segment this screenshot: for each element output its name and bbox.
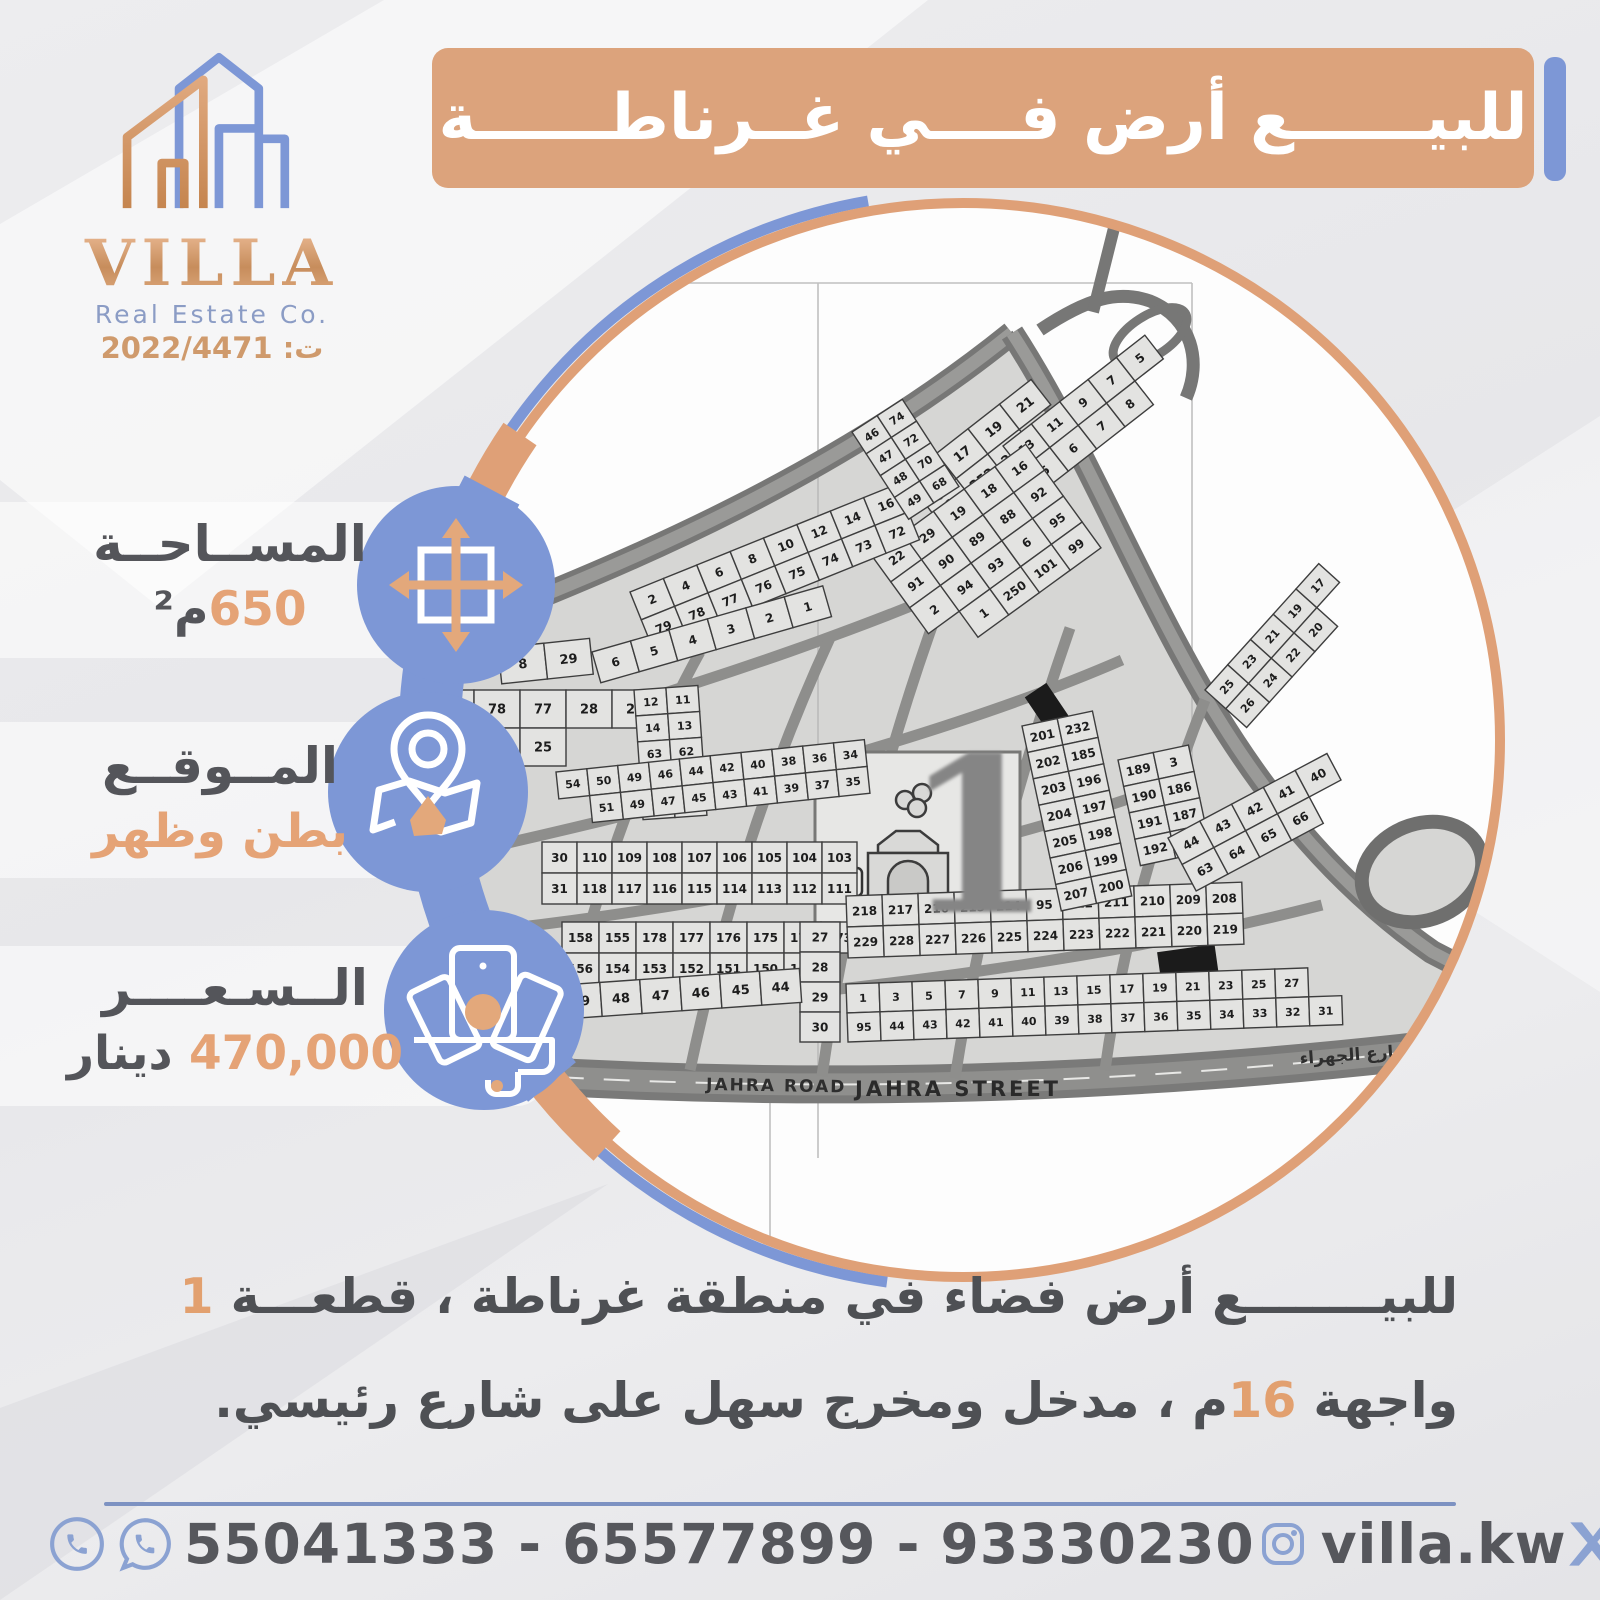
svg-text:116: 116 bbox=[652, 882, 677, 896]
svg-text:46: 46 bbox=[657, 767, 674, 782]
instagram-icon bbox=[1255, 1516, 1311, 1572]
svg-text:197: 197 bbox=[1081, 798, 1108, 817]
svg-text:174: 174 bbox=[790, 931, 815, 945]
svg-text:175: 175 bbox=[753, 931, 778, 945]
svg-text:30: 30 bbox=[551, 851, 568, 865]
svg-text:18: 18 bbox=[978, 480, 1000, 501]
svg-text:77: 77 bbox=[720, 591, 741, 610]
svg-text:232: 232 bbox=[1064, 719, 1091, 738]
svg-text:216: 216 bbox=[924, 901, 950, 916]
svg-text:88: 88 bbox=[997, 506, 1019, 527]
svg-text:38: 38 bbox=[780, 754, 797, 769]
svg-text:45: 45 bbox=[731, 983, 750, 999]
svg-text:41: 41 bbox=[1276, 782, 1297, 802]
svg-text:114: 114 bbox=[722, 882, 747, 896]
svg-text:44: 44 bbox=[771, 980, 790, 996]
logo-subtitle: Real Estate Co. bbox=[52, 300, 372, 329]
svg-text:33: 33 bbox=[1252, 1007, 1268, 1021]
svg-text:46: 46 bbox=[691, 985, 710, 1001]
location-value: بطن وظهر bbox=[40, 806, 400, 858]
page-title: للبيــــــع أرض فــــي غــرناطــــــة bbox=[439, 81, 1528, 155]
svg-text:65: 65 bbox=[1258, 826, 1279, 846]
svg-text:111: 111 bbox=[827, 882, 852, 896]
svg-text:40: 40 bbox=[1021, 1015, 1037, 1029]
svg-text:177: 177 bbox=[679, 931, 704, 945]
svg-text:19: 19 bbox=[1152, 981, 1168, 995]
svg-text:211: 211 bbox=[1104, 895, 1130, 910]
svg-text:43: 43 bbox=[922, 1018, 938, 1032]
svg-text:201: 201 bbox=[1029, 726, 1056, 745]
svg-text:106: 106 bbox=[722, 851, 747, 865]
svg-text:74: 74 bbox=[820, 550, 841, 569]
svg-text:12: 12 bbox=[809, 522, 830, 541]
svg-text:72: 72 bbox=[887, 523, 908, 542]
location-label: المــوقــع bbox=[40, 738, 400, 796]
svg-text:250: 250 bbox=[1001, 578, 1030, 604]
svg-text:13: 13 bbox=[677, 719, 693, 733]
svg-text:8: 8 bbox=[1123, 396, 1138, 412]
svg-text:42: 42 bbox=[719, 761, 736, 776]
svg-text:74: 74 bbox=[887, 409, 907, 428]
svg-text:49: 49 bbox=[904, 491, 924, 510]
svg-text:93: 93 bbox=[985, 555, 1007, 576]
phone-numbers[interactable]: 55041333 - 65577899 - 93330230 bbox=[184, 1512, 1255, 1576]
jahra-highway bbox=[420, 1040, 1510, 1084]
svg-text:75: 75 bbox=[787, 564, 808, 583]
roundabout bbox=[1347, 804, 1498, 939]
central-plaza bbox=[815, 752, 1020, 942]
svg-text:223: 223 bbox=[1069, 927, 1095, 942]
svg-text:37: 37 bbox=[814, 778, 831, 793]
svg-text:47: 47 bbox=[651, 988, 670, 1004]
svg-text:15: 15 bbox=[1086, 984, 1102, 998]
subdivision-map: P 15171921125225313119755678222919181691… bbox=[415, 212, 1515, 1260]
map-disc bbox=[430, 207, 1496, 1273]
svg-text:202: 202 bbox=[1034, 753, 1061, 772]
svg-text:191: 191 bbox=[1136, 813, 1163, 832]
svg-text:68: 68 bbox=[682, 797, 698, 811]
svg-text:25: 25 bbox=[1217, 677, 1237, 697]
orange-ring bbox=[426, 203, 1500, 1277]
svg-text:105: 105 bbox=[757, 851, 782, 865]
utility-plots bbox=[652, 683, 1221, 998]
svg-text:63: 63 bbox=[646, 747, 662, 761]
svg-text:155: 155 bbox=[605, 931, 630, 945]
svg-text:107: 107 bbox=[687, 851, 712, 865]
svg-text:47: 47 bbox=[876, 447, 896, 466]
svg-text:45: 45 bbox=[691, 791, 708, 806]
svg-text:214: 214 bbox=[996, 899, 1022, 914]
svg-text:35: 35 bbox=[1186, 1009, 1202, 1023]
svg-text:226: 226 bbox=[961, 931, 987, 946]
svg-text:12: 12 bbox=[643, 695, 659, 709]
svg-text:26: 26 bbox=[1238, 695, 1258, 715]
svg-text:6: 6 bbox=[1019, 535, 1034, 551]
svg-text:77: 77 bbox=[534, 703, 552, 718]
svg-text:203: 203 bbox=[1040, 779, 1067, 798]
svg-text:11: 11 bbox=[1020, 986, 1036, 1000]
svg-text:19: 19 bbox=[948, 503, 970, 524]
svg-text:95: 95 bbox=[1047, 510, 1069, 531]
svg-text:43: 43 bbox=[1212, 816, 1233, 836]
right-boundary-road bbox=[1012, 333, 1515, 995]
mosque-icon bbox=[868, 784, 948, 901]
area-value: 650م² bbox=[50, 584, 410, 636]
svg-text:14: 14 bbox=[645, 721, 662, 735]
ad-poster: { "logo": { "name": "VILLA", "subtitle":… bbox=[0, 0, 1600, 1600]
svg-text:16: 16 bbox=[876, 495, 897, 514]
svg-text:49: 49 bbox=[572, 994, 591, 1010]
svg-text:6: 6 bbox=[610, 654, 622, 670]
svg-text:89: 89 bbox=[966, 529, 988, 550]
svg-text:17: 17 bbox=[951, 443, 974, 466]
svg-text:49: 49 bbox=[629, 797, 646, 812]
svg-text:44: 44 bbox=[1180, 833, 1201, 853]
phone-icon bbox=[48, 1515, 106, 1573]
svg-text:220: 220 bbox=[1177, 923, 1203, 938]
price-label: الــسـعــــر bbox=[55, 960, 415, 1018]
svg-text:23: 23 bbox=[1218, 979, 1234, 993]
price-value: 470,000 دينار bbox=[55, 1028, 415, 1080]
footer-divider bbox=[104, 1502, 1456, 1506]
svg-text:7: 7 bbox=[1104, 372, 1119, 388]
svg-text:152: 152 bbox=[679, 962, 704, 976]
svg-text:1: 1 bbox=[943, 496, 959, 513]
social-group: villa_kw bbox=[1567, 1512, 1600, 1576]
interchange-road bbox=[1040, 296, 1193, 398]
svg-text:44: 44 bbox=[889, 1019, 905, 1033]
svg-text:13: 13 bbox=[1016, 436, 1038, 457]
svg-text:5: 5 bbox=[648, 643, 660, 659]
scan-frame-lines bbox=[520, 283, 1192, 1260]
x-twitter-icon bbox=[1567, 1519, 1600, 1569]
area-label: المســاحــة bbox=[50, 516, 410, 574]
svg-text:156: 156 bbox=[568, 962, 593, 976]
svg-text:6: 6 bbox=[713, 564, 726, 580]
svg-text:208: 208 bbox=[1212, 891, 1238, 906]
svg-text:17: 17 bbox=[1308, 576, 1328, 596]
svg-text:20: 20 bbox=[1306, 620, 1326, 640]
svg-text:229: 229 bbox=[853, 935, 879, 950]
svg-text:8: 8 bbox=[746, 551, 759, 567]
svg-text:27: 27 bbox=[812, 930, 829, 944]
svg-text:44: 44 bbox=[688, 764, 705, 779]
svg-text:5: 5 bbox=[925, 989, 933, 1002]
svg-text:73: 73 bbox=[854, 537, 875, 556]
description-line-2: واجهة 16م ، مدخل ومخرج سهل على شارع رئيس… bbox=[90, 1372, 1458, 1429]
instagram-handle[interactable]: villa.kw bbox=[1321, 1512, 1567, 1576]
svg-text:9: 9 bbox=[1076, 395, 1091, 411]
svg-text:19: 19 bbox=[1285, 601, 1305, 621]
svg-text:5: 5 bbox=[1132, 350, 1147, 366]
logo-registration: ت: 2022/4471 bbox=[52, 331, 372, 365]
svg-text:200: 200 bbox=[1098, 877, 1125, 896]
svg-text:39: 39 bbox=[1054, 1014, 1070, 1028]
svg-text:189: 189 bbox=[1125, 760, 1152, 779]
svg-text:34: 34 bbox=[842, 748, 859, 763]
svg-text:14: 14 bbox=[842, 509, 863, 528]
svg-text:187: 187 bbox=[1171, 806, 1198, 825]
svg-text:217: 217 bbox=[888, 902, 914, 917]
svg-text:31: 31 bbox=[1318, 1004, 1334, 1018]
svg-text:101: 101 bbox=[1031, 556, 1060, 582]
svg-text:72: 72 bbox=[901, 431, 921, 450]
svg-text:2: 2 bbox=[646, 591, 659, 607]
svg-text:3: 3 bbox=[892, 991, 900, 1004]
svg-text:31: 31 bbox=[551, 882, 568, 896]
svg-text:253: 253 bbox=[999, 441, 1030, 470]
svg-text:212: 212 bbox=[1068, 896, 1094, 911]
svg-text:209: 209 bbox=[1176, 892, 1202, 907]
svg-text:112: 112 bbox=[792, 882, 817, 896]
svg-text:78: 78 bbox=[687, 604, 708, 623]
svg-text:206: 206 bbox=[1057, 858, 1084, 877]
svg-text:P: P bbox=[841, 871, 856, 895]
svg-text:252: 252 bbox=[967, 466, 998, 495]
svg-text:176: 176 bbox=[716, 931, 741, 945]
svg-text:65: 65 bbox=[648, 773, 664, 787]
svg-text:91: 91 bbox=[905, 573, 927, 594]
svg-text:4: 4 bbox=[687, 632, 699, 648]
svg-text:221: 221 bbox=[1141, 925, 1167, 940]
svg-text:3: 3 bbox=[725, 621, 737, 637]
svg-text:154: 154 bbox=[605, 962, 630, 976]
svg-text:115: 115 bbox=[687, 882, 712, 896]
svg-text:34: 34 bbox=[1219, 1008, 1235, 1022]
svg-text:8: 8 bbox=[518, 657, 529, 673]
svg-text:42: 42 bbox=[955, 1017, 971, 1031]
svg-text:95: 95 bbox=[856, 1021, 872, 1035]
title-banner-accent bbox=[1544, 57, 1566, 181]
svg-text:2: 2 bbox=[927, 602, 942, 618]
svg-text:13: 13 bbox=[1053, 985, 1069, 999]
svg-text:23: 23 bbox=[1240, 652, 1260, 672]
svg-text:21: 21 bbox=[1014, 394, 1037, 417]
svg-text:36: 36 bbox=[811, 751, 828, 766]
svg-text:18: 18 bbox=[909, 482, 930, 501]
svg-text:10: 10 bbox=[776, 536, 797, 555]
svg-text:90: 90 bbox=[936, 551, 958, 572]
svg-text:225: 225 bbox=[997, 930, 1023, 945]
svg-text:27: 27 bbox=[1284, 977, 1300, 991]
svg-text:29: 29 bbox=[812, 990, 829, 1004]
svg-text:63: 63 bbox=[1195, 859, 1216, 879]
svg-text:153: 153 bbox=[642, 962, 667, 976]
svg-text:28: 28 bbox=[580, 703, 598, 718]
company-logo: VILLA Real Estate Co. ت: 2022/4471 bbox=[52, 28, 372, 365]
svg-text:11: 11 bbox=[1044, 414, 1066, 435]
svg-text:188: 188 bbox=[1177, 832, 1204, 851]
svg-text:29: 29 bbox=[917, 525, 939, 546]
svg-text:178: 178 bbox=[642, 931, 667, 945]
svg-text:1: 1 bbox=[802, 599, 814, 615]
svg-text:51: 51 bbox=[598, 801, 615, 816]
plot-blocks: 1517192112522531311975567822291918169190… bbox=[428, 335, 1360, 1042]
big-plot-number: 1 bbox=[903, 710, 1053, 963]
svg-text:39: 39 bbox=[783, 781, 800, 796]
svg-text:94: 94 bbox=[954, 577, 976, 598]
svg-text:62: 62 bbox=[678, 745, 694, 759]
svg-text:40: 40 bbox=[1308, 765, 1329, 785]
svg-text:66: 66 bbox=[1290, 809, 1311, 829]
svg-text:190: 190 bbox=[1130, 787, 1157, 806]
svg-text:2: 2 bbox=[764, 610, 776, 626]
svg-text:42: 42 bbox=[1244, 799, 1265, 819]
svg-text:47: 47 bbox=[660, 794, 677, 809]
svg-text:104: 104 bbox=[792, 851, 817, 865]
svg-text:78: 78 bbox=[488, 703, 506, 718]
svg-text:54: 54 bbox=[565, 777, 582, 792]
svg-text:35: 35 bbox=[845, 775, 862, 790]
svg-text:41: 41 bbox=[988, 1016, 1004, 1030]
svg-text:150: 150 bbox=[753, 962, 778, 976]
svg-text:17: 17 bbox=[1119, 982, 1135, 996]
svg-text:6: 6 bbox=[1066, 440, 1081, 456]
svg-text:205: 205 bbox=[1051, 832, 1078, 851]
svg-text:21: 21 bbox=[1185, 980, 1201, 994]
svg-text:40: 40 bbox=[750, 758, 767, 773]
svg-text:28: 28 bbox=[812, 960, 829, 974]
svg-text:64: 64 bbox=[1226, 843, 1247, 863]
info-area: المســاحــة 650م² bbox=[50, 516, 410, 635]
phone-group: 55041333 - 65577899 - 93330230 bbox=[48, 1512, 1255, 1576]
svg-text:22: 22 bbox=[1283, 645, 1303, 665]
svg-text:118: 118 bbox=[582, 882, 607, 896]
svg-text:207: 207 bbox=[1062, 885, 1089, 904]
interchange-loop bbox=[1104, 296, 1196, 375]
svg-text:109: 109 bbox=[617, 851, 642, 865]
svg-text:7: 7 bbox=[1094, 418, 1109, 434]
svg-text:4: 4 bbox=[679, 578, 692, 594]
instagram-group: villa.kw bbox=[1255, 1512, 1567, 1576]
svg-text:222: 222 bbox=[1105, 926, 1131, 941]
svg-text:103: 103 bbox=[827, 851, 852, 865]
description-line-1: للبيــــــــع أرض فضاء في منطقة غرناطة ،… bbox=[90, 1268, 1458, 1325]
svg-text:38: 38 bbox=[1087, 1013, 1103, 1027]
svg-text:99: 99 bbox=[1065, 536, 1087, 557]
svg-text:67: 67 bbox=[650, 799, 666, 813]
svg-text:219: 219 bbox=[1213, 922, 1239, 937]
svg-text:1: 1 bbox=[859, 992, 867, 1005]
svg-text:192: 192 bbox=[1142, 840, 1169, 859]
svg-text:227: 227 bbox=[925, 932, 951, 947]
svg-text:32: 32 bbox=[1285, 1006, 1301, 1020]
logo-buildings-icon bbox=[82, 28, 342, 228]
svg-text:50: 50 bbox=[595, 774, 612, 789]
svg-text:108: 108 bbox=[652, 851, 677, 865]
internal-streets bbox=[452, 540, 1322, 1078]
svg-text:228: 228 bbox=[889, 933, 915, 948]
svg-text:48: 48 bbox=[890, 469, 910, 488]
svg-text:27: 27 bbox=[626, 703, 644, 718]
svg-text:70: 70 bbox=[915, 453, 935, 472]
svg-text:22: 22 bbox=[886, 547, 908, 568]
svg-text:49: 49 bbox=[626, 771, 643, 786]
svg-text:48: 48 bbox=[611, 991, 630, 1007]
svg-text:64: 64 bbox=[680, 771, 697, 785]
svg-text:196: 196 bbox=[1075, 772, 1102, 791]
svg-text:11: 11 bbox=[675, 693, 691, 707]
svg-text:29: 29 bbox=[559, 651, 579, 668]
svg-text:68: 68 bbox=[930, 475, 950, 494]
parking-icon: P bbox=[834, 868, 862, 896]
svg-text:16: 16 bbox=[1009, 458, 1031, 479]
svg-text:151: 151 bbox=[716, 962, 741, 976]
svg-text:30: 30 bbox=[812, 1020, 829, 1034]
svg-text:15: 15 bbox=[920, 468, 943, 491]
svg-text:149: 149 bbox=[790, 962, 815, 976]
svg-text:46: 46 bbox=[862, 425, 882, 444]
svg-text:185: 185 bbox=[1070, 745, 1097, 764]
svg-text:36: 36 bbox=[1153, 1010, 1169, 1024]
svg-text:218: 218 bbox=[852, 904, 878, 919]
svg-text:9: 9 bbox=[991, 987, 999, 1000]
svg-text:158: 158 bbox=[568, 931, 593, 945]
svg-text:198: 198 bbox=[1086, 824, 1113, 843]
svg-text:37: 37 bbox=[1120, 1011, 1136, 1025]
title-banner: للبيــــــع أرض فــــي غــرناطــــــة bbox=[432, 48, 1534, 188]
svg-text:79: 79 bbox=[653, 618, 674, 637]
district-land bbox=[415, 333, 1510, 1090]
svg-text:204: 204 bbox=[1046, 806, 1073, 825]
svg-text:76: 76 bbox=[753, 577, 774, 596]
svg-text:3: 3 bbox=[1168, 755, 1179, 770]
svg-text:117: 117 bbox=[617, 882, 642, 896]
svg-text:95: 95 bbox=[1036, 898, 1053, 913]
info-location: المــوقــع بطن وظهر bbox=[40, 738, 400, 857]
road-label-arabic: شارع الجهراء bbox=[1299, 1041, 1411, 1069]
svg-text:92: 92 bbox=[1028, 484, 1050, 505]
svg-text:215: 215 bbox=[960, 900, 986, 915]
svg-text:24: 24 bbox=[1261, 670, 1281, 690]
svg-text:224: 224 bbox=[1033, 928, 1059, 943]
svg-text:7: 7 bbox=[958, 988, 966, 1001]
svg-text:186: 186 bbox=[1166, 779, 1193, 798]
logo-name: VILLA bbox=[52, 232, 372, 296]
svg-text:41: 41 bbox=[752, 784, 769, 799]
info-price: الــسـعــــر 470,000 دينار bbox=[55, 960, 415, 1079]
whatsapp-icon bbox=[116, 1515, 174, 1573]
svg-text:113: 113 bbox=[757, 882, 782, 896]
svg-text:25: 25 bbox=[1251, 978, 1267, 992]
svg-text:110: 110 bbox=[582, 851, 607, 865]
svg-text:1: 1 bbox=[977, 605, 992, 621]
svg-text:19: 19 bbox=[983, 418, 1006, 441]
contact-bar: 55041333 - 65577899 - 93330230 villa.kw … bbox=[48, 1512, 1558, 1576]
road-label-jahra-street: JAHRA STREET bbox=[853, 1077, 1061, 1101]
svg-text:210: 210 bbox=[1140, 894, 1166, 909]
svg-text:173: 173 bbox=[827, 931, 852, 945]
svg-text:43: 43 bbox=[722, 788, 739, 803]
svg-text:79: 79 bbox=[442, 703, 460, 718]
svg-text:199: 199 bbox=[1092, 851, 1119, 870]
svg-text:5: 5 bbox=[1037, 463, 1052, 479]
svg-text:21: 21 bbox=[1263, 626, 1283, 646]
road-label-jahra-road: JAHRA ROAD bbox=[705, 1075, 847, 1097]
